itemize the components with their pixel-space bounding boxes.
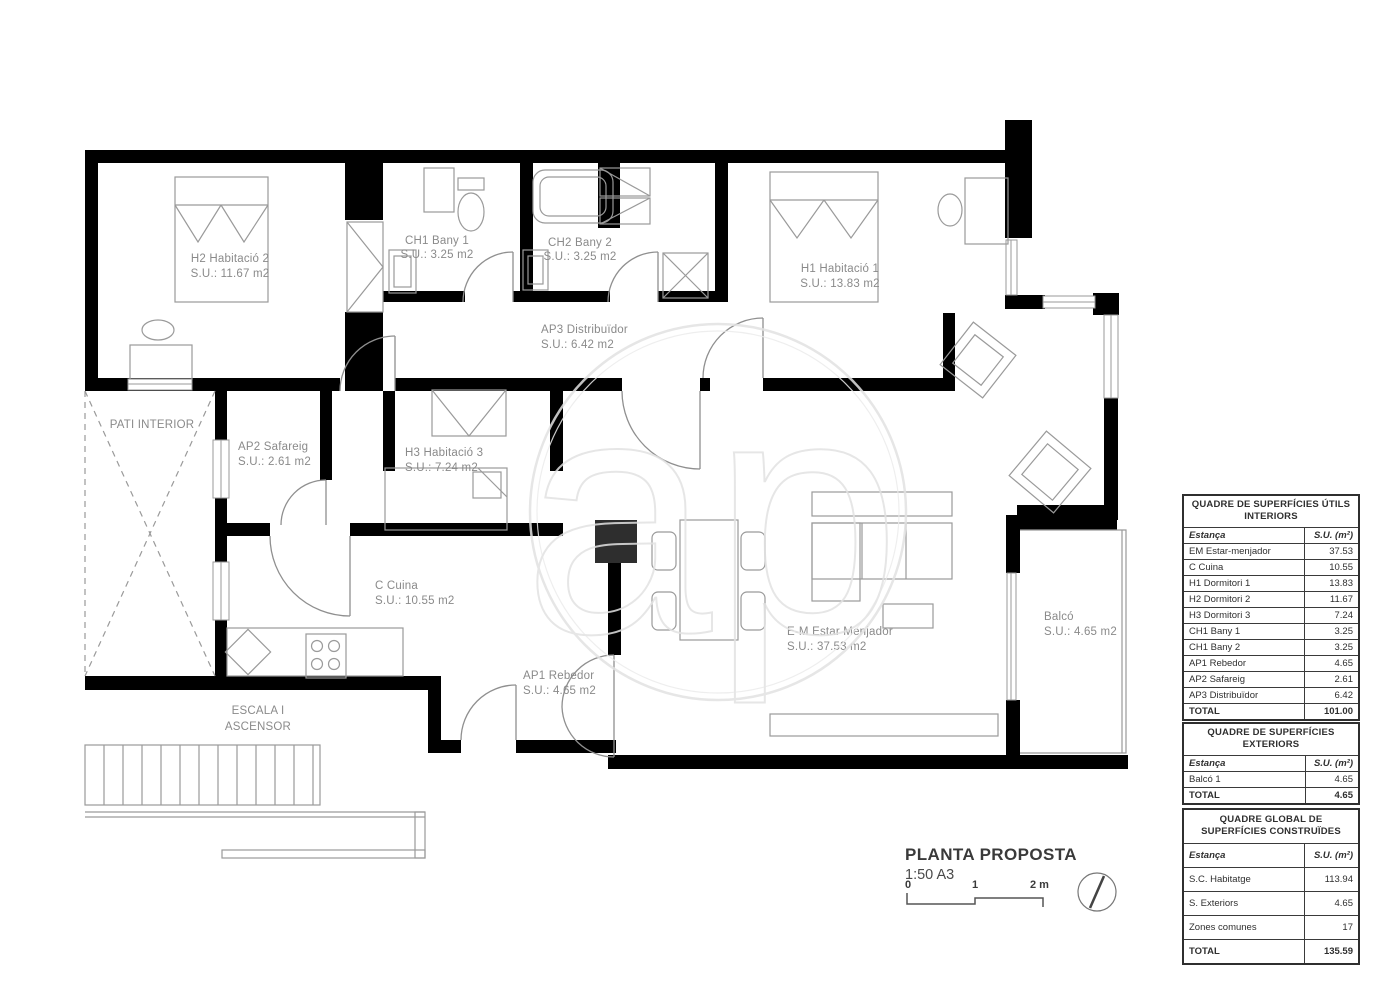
cell-su: 11.67 [1305, 591, 1359, 607]
h2-bed [175, 177, 268, 302]
table-row: C Cuina10.55 [1183, 559, 1359, 575]
table-row: H3 Dormitori 37.24 [1183, 607, 1359, 623]
col-header-estanca: Estança [1183, 755, 1306, 771]
cell-estanca: EM Estar-menjador [1183, 543, 1305, 559]
scale-bar: 0 1 2 m [905, 879, 1049, 907]
svg-text:S.U.: 10.55 m2: S.U.: 10.55 m2 [375, 595, 455, 607]
label-h2: H2 Habitació 2 S.U.: 11.67 m2 [191, 253, 270, 280]
cell-estanca: H2 Dormitori 2 [1183, 591, 1305, 607]
cell-estanca: H1 Dormitori 1 [1183, 575, 1305, 591]
cell-estanca: S. Exteriors [1183, 891, 1305, 915]
svg-text:Balcó: Balcó [1044, 611, 1074, 623]
label-ap2: AP2 Safareig S.U.: 2.61 m2 [238, 441, 311, 468]
label-pati: PATI INTERIOR [110, 419, 195, 431]
table-total-row: TOTAL 101.00 [1183, 703, 1359, 720]
cell-su: 7.24 [1305, 607, 1359, 623]
ch1-fixtures [389, 168, 484, 293]
label-ch2: CH2 Bany 2 S.U.: 3.25 m2 [544, 237, 617, 263]
svg-text:C Cuina: C Cuina [375, 580, 418, 592]
h3-bed [385, 468, 507, 530]
col-header-su: S.U. (m²) [1306, 755, 1359, 771]
cell-su: 3.25 [1305, 623, 1359, 639]
table-title: QUADRE DE SUPERFÍCIES ÚTILS INTERIORS [1183, 495, 1359, 527]
cell-su: 4.65 [1305, 891, 1359, 915]
title-block: PLANTA PROPOSTA 1:50 A3 [905, 845, 1077, 883]
svg-text:S.U.: 7.24 m2: S.U.: 7.24 m2 [405, 462, 478, 474]
table-superficies-interiors: QUADRE DE SUPERFÍCIES ÚTILS INTERIORS Es… [1182, 494, 1360, 721]
cell-su: 17 [1305, 915, 1359, 939]
table-row: H2 Dormitori 211.67 [1183, 591, 1359, 607]
floor-plan-sheet: H2 Habitació 2 S.U.: 11.67 m2 CH1 Bany 1… [0, 0, 1400, 990]
cell-estanca: CH1 Bany 1 [1183, 623, 1305, 639]
label-h1: H1 Habitació 1 S.U.: 13.83 m2 [800, 263, 880, 290]
cell-estanca: H3 Dormitori 3 [1183, 607, 1305, 623]
kitchen-counter [225, 628, 403, 678]
label-cuina: C Cuina S.U.: 10.55 m2 [375, 580, 455, 607]
cell-estanca: Balcó 1 [1183, 771, 1306, 787]
table-header-row: Estança S.U. (m²) [1183, 843, 1359, 867]
watermark-text: ap [523, 325, 901, 706]
svg-text:ESCALA I: ESCALA I [232, 705, 285, 717]
table-title: QUADRE GLOBAL DE SUPERFÍCIES CONSTRUÏDES [1183, 809, 1359, 843]
table-row: S. Exteriors4.65 [1183, 891, 1359, 915]
cell-su: 10.55 [1305, 559, 1359, 575]
table-row: CH1 Bany 13.25 [1183, 623, 1359, 639]
cell-su: 4.65 [1306, 771, 1359, 787]
h2-wardrobe [347, 222, 383, 312]
label-balco: Balcó S.U.: 4.65 m2 [1044, 611, 1117, 638]
watermark: ap [523, 324, 906, 706]
cell-estanca: Zones comunes [1183, 915, 1305, 939]
staircase [85, 745, 425, 858]
h3-wardrobe [432, 390, 506, 436]
col-header-su: S.U. (m²) [1305, 843, 1359, 867]
table-header-row: Estança S.U. (m²) [1183, 755, 1359, 771]
balcony-outline [1020, 530, 1126, 753]
svg-text:S.U.: 13.83 m2: S.U.: 13.83 m2 [800, 278, 880, 290]
plan-title: PLANTA PROPOSTA [905, 845, 1077, 865]
table-row: H1 Dormitori 113.83 [1183, 575, 1359, 591]
armchair-2 [1009, 431, 1091, 513]
table-total-row: TOTAL 135.59 [1183, 939, 1359, 964]
table-total-row: TOTAL 4.65 [1183, 787, 1359, 804]
svg-text:CH2 Bany 2: CH2 Bany 2 [548, 237, 612, 249]
label-ch1: CH1 Bany 1 S.U.: 3.25 m2 [401, 235, 474, 261]
table-superficies-exteriors: QUADRE DE SUPERFÍCIES EXTERIORS Estança … [1182, 722, 1360, 805]
cell-su: 4.65 [1305, 655, 1359, 671]
cell-estanca: C Cuina [1183, 559, 1305, 575]
col-header-estanca: Estança [1183, 843, 1305, 867]
svg-text:CH1 Bany 1: CH1 Bany 1 [405, 235, 469, 247]
cell-su: 13.83 [1305, 575, 1359, 591]
cell-estanca: S.C. Habitatge [1183, 867, 1305, 891]
cell-su: 6.42 [1305, 687, 1359, 703]
svg-text:S.U.: 2.61 m2: S.U.: 2.61 m2 [238, 456, 311, 468]
cell-estanca: AP2 Safareig [1183, 671, 1305, 687]
svg-text:PATI INTERIOR: PATI INTERIOR [110, 419, 195, 431]
cell-su: 3.25 [1305, 639, 1359, 655]
svg-text:S.U.: 4.65 m2: S.U.: 4.65 m2 [1044, 626, 1117, 638]
pati-hatch [85, 391, 215, 676]
col-header-su: S.U. (m²) [1305, 527, 1359, 543]
table-row: Zones comunes17 [1183, 915, 1359, 939]
cell-estanca: AP3 Distribuïdor [1183, 687, 1305, 703]
table-superficies-global: QUADRE GLOBAL DE SUPERFÍCIES CONSTRUÏDES… [1182, 808, 1360, 965]
table-title: QUADRE DE SUPERFÍCIES EXTERIORS [1183, 723, 1359, 755]
h1-desk [938, 178, 1008, 244]
plan-scale: 1:50 A3 [905, 867, 1077, 883]
table-header-row: Estança S.U. (m²) [1183, 527, 1359, 543]
svg-text:ASCENSOR: ASCENSOR [225, 721, 291, 733]
cell-su: 37.53 [1305, 543, 1359, 559]
cell-su: 2.61 [1305, 671, 1359, 687]
table-row: S.C. Habitatge113.94 [1183, 867, 1359, 891]
cell-estanca: CH1 Bany 2 [1183, 639, 1305, 655]
label-h3: H3 Habitació 3 S.U.: 7.24 m2 [405, 447, 483, 474]
svg-text:AP2 Safareig: AP2 Safareig [238, 441, 308, 453]
north-arrow-icon [1078, 873, 1116, 911]
svg-text:H1 Habitació 1: H1 Habitació 1 [801, 263, 879, 275]
label-escala: ESCALA I ASCENSOR [225, 705, 291, 733]
cell-su: 113.94 [1305, 867, 1359, 891]
svg-text:H3 Habitació 3: H3 Habitació 3 [405, 447, 483, 459]
table-row: Balcó 14.65 [1183, 771, 1359, 787]
table-row: AP2 Safareig2.61 [1183, 671, 1359, 687]
table-row: AP3 Distribuïdor6.42 [1183, 687, 1359, 703]
svg-text:H2 Habitació 2: H2 Habitació 2 [191, 253, 269, 265]
svg-text:S.U.: 11.67 m2: S.U.: 11.67 m2 [191, 268, 270, 280]
svg-text:S.U.: 3.25 m2: S.U.: 3.25 m2 [401, 249, 474, 261]
table-row: CH1 Bany 23.25 [1183, 639, 1359, 655]
table-row: AP1 Rebedor4.65 [1183, 655, 1359, 671]
cell-estanca: AP1 Rebedor [1183, 655, 1305, 671]
svg-text:S.U.: 3.25 m2: S.U.: 3.25 m2 [544, 251, 617, 263]
table-row: EM Estar-menjador37.53 [1183, 543, 1359, 559]
h2-desk [130, 320, 192, 379]
col-header-estanca: Estança [1183, 527, 1305, 543]
